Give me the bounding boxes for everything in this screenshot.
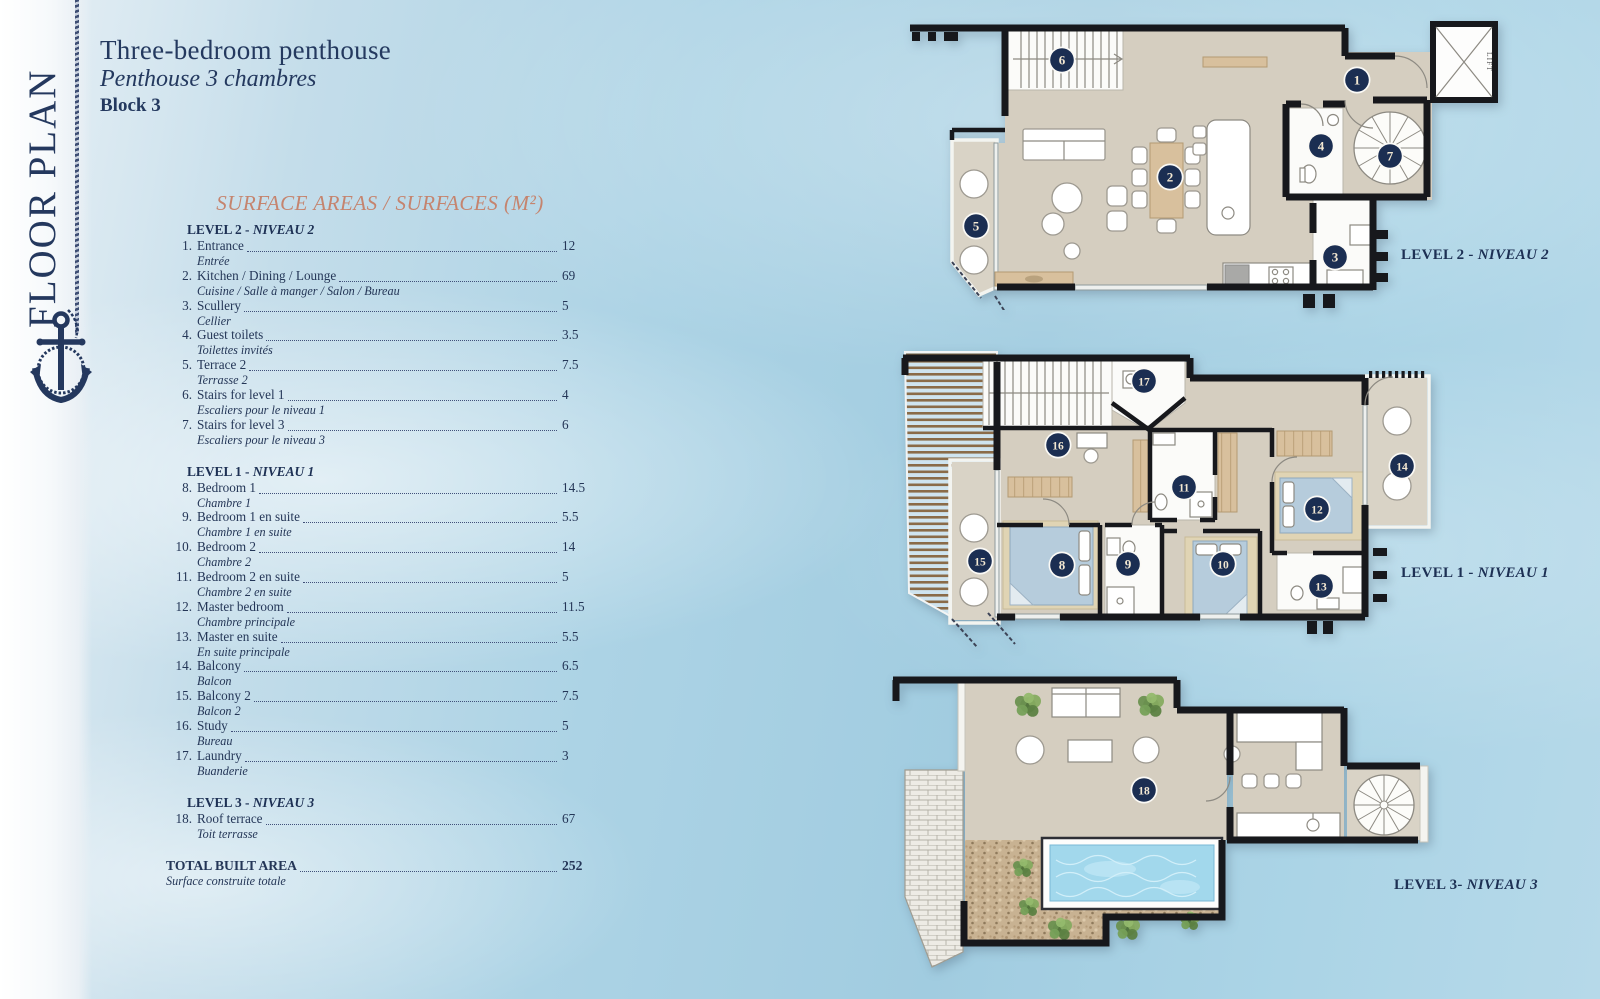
svg-text:2: 2 xyxy=(1167,169,1174,184)
surface-row: 4.Guest toilets3.5 xyxy=(166,328,596,343)
svg-text:12: 12 xyxy=(1311,504,1323,516)
svg-text:8: 8 xyxy=(1059,557,1066,572)
surface-section-header: LEVEL 1 - NIVEAU 1 xyxy=(166,464,596,481)
title-fr: Penthouse 3 chambres xyxy=(100,67,391,92)
surface-row: 6.Stairs for level 14 xyxy=(166,388,596,403)
page: FLOOR PLAN Three-bedroom penthouse Penth… xyxy=(0,0,1600,999)
surface-row-fr: Entrée xyxy=(166,254,596,269)
plan-marker: 7 xyxy=(1377,143,1404,170)
surface-row-fr: Balcon 2 xyxy=(166,704,596,719)
svg-text:16: 16 xyxy=(1052,440,1064,452)
svg-text:9: 9 xyxy=(1125,556,1132,571)
surface-row-fr: Balcon xyxy=(166,674,596,689)
surface-row: 14.Balcony6.5 xyxy=(166,659,596,674)
svg-text:3: 3 xyxy=(1332,249,1339,264)
surface-row-fr: Chambre 2 xyxy=(166,555,596,570)
surface-row-fr: Terrasse 2 xyxy=(166,373,596,388)
plan-marker: 8 xyxy=(1049,552,1076,579)
plan-marker: 5 xyxy=(963,213,990,240)
surface-areas-heading: SURFACE AREAS / SURFACES (M²) xyxy=(168,191,592,216)
svg-text:14: 14 xyxy=(1396,461,1408,473)
surface-row: 3.Scullery5 xyxy=(166,299,596,314)
sidebar: FLOOR PLAN xyxy=(0,0,92,999)
level-1-label: LEVEL 1 - NIVEAU 1 xyxy=(1401,565,1549,582)
floor-plan-level-3: 18 xyxy=(860,655,1505,995)
svg-text:7: 7 xyxy=(1387,148,1394,163)
surface-row-fr: Toilettes invités xyxy=(166,343,596,358)
plan-marker: 6 xyxy=(1049,47,1076,74)
level-2-label: LEVEL 2 - NIVEAU 2 xyxy=(1401,247,1549,264)
surface-areas-list: LEVEL 2 - NIVEAU 21.Entrance12Entrée2.Ki… xyxy=(166,222,596,889)
plan-marker: 18 xyxy=(1131,777,1158,804)
surface-section: LEVEL 2 - NIVEAU 21.Entrance12Entrée2.Ki… xyxy=(166,222,596,448)
surface-section-header: LEVEL 3 - NIVEAU 3 xyxy=(166,795,596,812)
floor-plan-level-1: 891011121314151617 xyxy=(885,345,1515,650)
plan-marker: 13 xyxy=(1308,573,1335,600)
surface-row: 13.Master en suite5.5 xyxy=(166,630,596,645)
surface-row-fr: Chambre 1 en suite xyxy=(166,525,596,540)
surface-row: 1.Entrance12 xyxy=(166,239,596,254)
surface-row: 2.Kitchen / Dining / Lounge69 xyxy=(166,269,596,284)
surface-row: 17.Laundry3 xyxy=(166,749,596,764)
block-label: Block 3 xyxy=(100,96,391,116)
page-title-vertical: FLOOR PLAN xyxy=(20,10,65,328)
surface-section: LEVEL 1 - NIVEAU 18.Bedroom 114.5Chambre… xyxy=(166,464,596,779)
floor-plan-level-2: LIFT 1234567 xyxy=(895,8,1507,310)
surface-row-fr: Escaliers pour le niveau 1 xyxy=(166,403,596,418)
svg-text:10: 10 xyxy=(1217,559,1229,571)
surface-row-fr: Cellier xyxy=(166,314,596,329)
svg-text:5: 5 xyxy=(973,218,980,233)
plan-marker: 10 xyxy=(1210,551,1237,578)
plan-marker: 9 xyxy=(1115,551,1142,578)
svg-text:1: 1 xyxy=(1354,72,1361,87)
surface-row-fr: En suite principale xyxy=(166,645,596,660)
surface-row-fr: Chambre principale xyxy=(166,615,596,630)
plan-marker: 15 xyxy=(967,548,994,575)
plan-marker: 17 xyxy=(1131,368,1158,395)
total-built-area: TOTAL BUILT AREA252Surface construite to… xyxy=(166,859,596,889)
surface-row: 5.Terrace 27.5 xyxy=(166,358,596,373)
svg-text:11: 11 xyxy=(1179,482,1190,494)
svg-text:6: 6 xyxy=(1059,52,1066,67)
surface-row-fr: Escaliers pour le niveau 3 xyxy=(166,433,596,448)
plan-marker: 14 xyxy=(1389,453,1416,480)
plan-marker: 2 xyxy=(1157,164,1184,191)
surface-row: 8.Bedroom 114.5 xyxy=(166,481,596,496)
surface-row-fr: Bureau xyxy=(166,734,596,749)
svg-text:17: 17 xyxy=(1138,376,1150,388)
plan-marker: 1 xyxy=(1344,67,1371,94)
surface-row-fr: Chambre 2 en suite xyxy=(166,585,596,600)
surface-row: 7.Stairs for level 36 xyxy=(166,418,596,433)
surface-row: 11.Bedroom 2 en suite5 xyxy=(166,570,596,585)
svg-text:15: 15 xyxy=(974,556,986,568)
surface-row: 12.Master bedroom11.5 xyxy=(166,600,596,615)
svg-text:18: 18 xyxy=(1138,785,1150,797)
level-3-label: LEVEL 3- NIVEAU 3 xyxy=(1394,877,1538,894)
surface-row: 18.Roof terrace67 xyxy=(166,812,596,827)
plan-marker: 11 xyxy=(1171,474,1198,501)
lift-label: LIFT xyxy=(1485,52,1494,72)
rope-border xyxy=(75,0,79,334)
anchor-icon xyxy=(24,306,92,410)
surface-row: 16.Study5 xyxy=(166,719,596,734)
surface-section-header: LEVEL 2 - NIVEAU 2 xyxy=(166,222,596,239)
surface-row: 9.Bedroom 1 en suite5.5 xyxy=(166,510,596,525)
header: Three-bedroom penthouse Penthouse 3 cham… xyxy=(100,36,391,116)
surface-row-fr: Chambre 1 xyxy=(166,496,596,511)
svg-text:13: 13 xyxy=(1315,581,1327,593)
surface-section: LEVEL 3 - NIVEAU 318.Roof terrace67Toit … xyxy=(166,795,596,842)
plan-marker: 3 xyxy=(1322,244,1349,271)
title-en: Three-bedroom penthouse xyxy=(100,36,391,64)
svg-text:4: 4 xyxy=(1318,138,1325,153)
plan-marker: 16 xyxy=(1045,432,1072,459)
surface-row-fr: Buanderie xyxy=(166,764,596,779)
surface-row-fr: Toit terrasse xyxy=(166,827,596,842)
surface-row: 10.Bedroom 214 xyxy=(166,540,596,555)
plan-marker: 4 xyxy=(1308,133,1335,160)
surface-row-fr: Cuisine / Salle à manger / Salon / Burea… xyxy=(166,284,596,299)
surface-row: 15.Balcony 27.5 xyxy=(166,689,596,704)
plan-marker: 12 xyxy=(1304,496,1331,523)
